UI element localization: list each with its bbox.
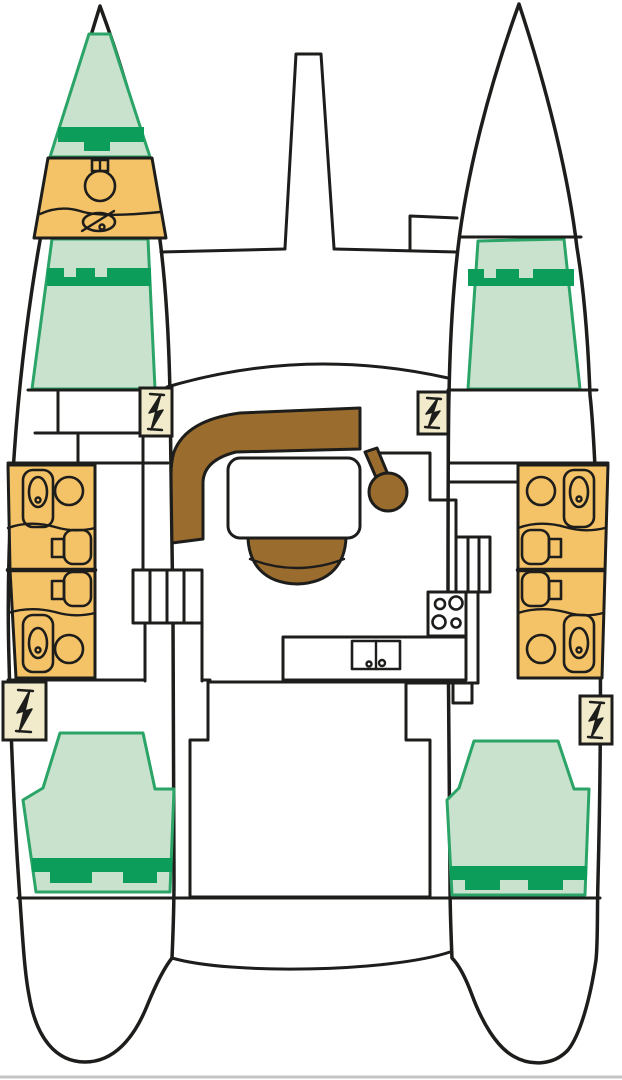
bolt-steps-marker-starboard-fwd [418,392,448,434]
starboard-heads [518,465,608,678]
salon [171,408,407,584]
cockpit-block [190,682,430,897]
stool-icon [369,473,407,511]
bolt-steps-marker-port-fwd [140,388,172,436]
anchor-locker [410,216,457,250]
transom-bridge-curve [172,952,450,969]
starboard-companionway-steps [456,537,490,592]
table-icon [228,458,360,538]
galley-step [453,683,472,703]
coachroof-front-curve [167,364,448,387]
port-companionway-steps [133,570,202,623]
bench-icon [248,538,346,584]
starboard-forward-berth [468,239,580,389]
crossbeam-icon [161,249,456,252]
bolt-steps-marker-starboard-aft [580,696,612,744]
port-heads [8,465,95,678]
catamaran-floor-plan [0,0,622,1080]
port-bow-berth [50,34,150,157]
port-forward-berth [32,239,155,389]
bolt-steps-marker-port-aft [3,682,46,740]
galley-counter [283,637,466,680]
boat-plan-svg [0,0,622,1080]
port-bow-head [34,158,166,238]
